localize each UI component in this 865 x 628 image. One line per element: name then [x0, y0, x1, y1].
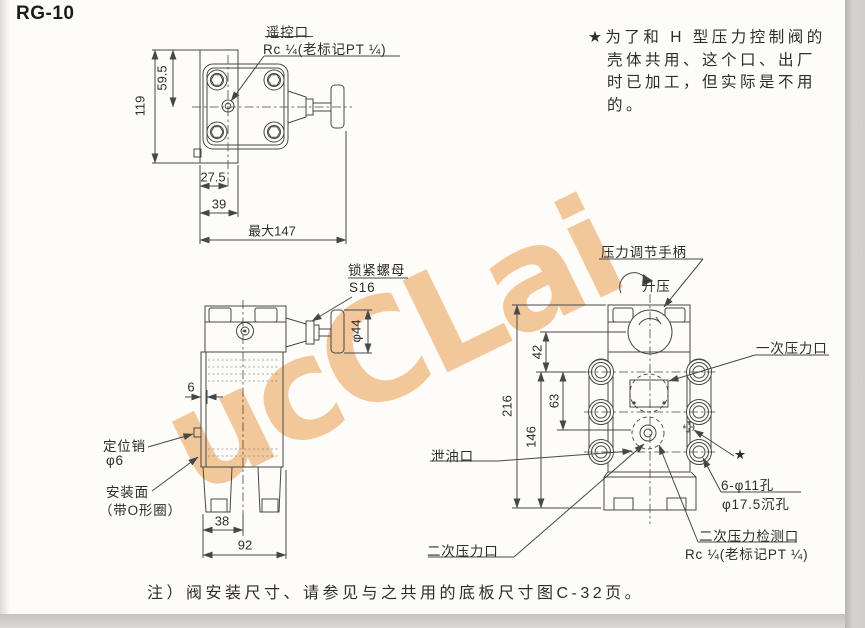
star-note-line: 的。 — [588, 95, 860, 118]
secondary-port-label: 二次压力口 — [427, 540, 499, 560]
dim-119: 119 — [133, 96, 148, 117]
star-note-line: 时已加工，但实际是不用 — [588, 72, 860, 95]
dim-27-5: 27.5 — [200, 170, 225, 185]
drain-port-label: 泄油口 — [431, 445, 474, 465]
star-mark: ★ — [734, 447, 747, 463]
footer-note: 注）阀安装尺寸、请参见与之共用的底板尺寸图C-32页。 — [147, 579, 644, 603]
raise-pressure-label: 升压 — [642, 275, 671, 295]
lock-nut-label: 锁紧螺母 — [348, 259, 405, 279]
dim-216: 216 — [500, 395, 515, 417]
primary-port-label: 一次压力口 — [756, 337, 828, 357]
side-view-linework — [148, 278, 408, 559]
counterbore-label: φ17.5沉孔 — [722, 493, 790, 513]
lock-nut-size: S16 — [349, 280, 375, 295]
star-note-line: ★为了和 H 型压力控制阀的 — [588, 27, 860, 50]
pin-dia: φ6 — [106, 453, 124, 468]
dim-42: 42 — [530, 345, 545, 359]
top-view-linework — [152, 37, 400, 245]
mount-face-label: 安装面 — [106, 481, 149, 501]
star-note-line: 壳体共用、这个口、出厂 — [588, 50, 860, 73]
check-port-label: 二次压力检测口 — [699, 525, 799, 545]
dim-6: 6 — [187, 380, 194, 395]
dim-146: 146 — [524, 426, 539, 448]
dim-phi44: φ44 — [349, 320, 364, 343]
bolt-holes-label: 6-φ11孔 — [721, 474, 774, 494]
star-note: ★为了和 H 型压力控制阀的 壳体共用、这个口、出厂 时已加工，但实际是不用 的… — [588, 27, 860, 117]
mount-face-sub: （带O形圈） — [99, 499, 182, 519]
dim-39: 39 — [212, 197, 226, 212]
remote-port-thread: Rc ¼(老标记PT ¼) — [263, 38, 386, 58]
dim-38: 38 — [215, 514, 229, 529]
pin-label: 定位销 — [103, 435, 146, 455]
dim-63: 63 — [547, 394, 562, 408]
model-title: RG-10 — [16, 3, 74, 25]
catalog-page: ucCLai — [0, 0, 865, 628]
dim-92: 92 — [238, 538, 252, 553]
handle-label: 压力调节手柄 — [601, 241, 687, 261]
dim-max-147: 最大147 — [248, 221, 296, 240]
check-port-thread: Rc ¼(老标记PT ¼) — [685, 543, 808, 563]
dim-59-5: 59.5 — [155, 65, 170, 90]
